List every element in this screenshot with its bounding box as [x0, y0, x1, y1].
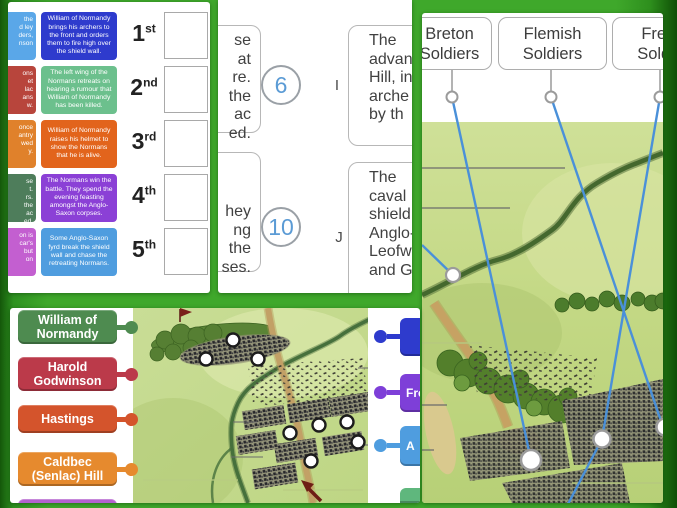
- label-cut-right-1[interactable]: [400, 318, 420, 356]
- map-terrain: [422, 122, 663, 503]
- connector-dot: [374, 330, 387, 343]
- event-card[interactable]: William of Normandy brings his archers t…: [41, 12, 117, 60]
- connector-dot: [125, 413, 138, 426]
- battle-map-illustration: [422, 13, 663, 503]
- answer-box-4[interactable]: [164, 174, 208, 221]
- ordinal-3rd: 3rd: [124, 128, 164, 160]
- panel-sequencing-worksheet: the d ley ders, nson ons et lac ans w. o…: [8, 2, 210, 293]
- answer-box-3[interactable]: [164, 120, 208, 167]
- event-card[interactable]: William of Normandy raises his helmet to…: [41, 120, 117, 168]
- label-hastings[interactable]: Hastings: [18, 405, 117, 433]
- connector-dot: [125, 463, 138, 476]
- match-number-10: 10: [261, 207, 301, 247]
- hastings-map-illustration: [133, 308, 368, 503]
- label-cut-bottom[interactable]: [18, 499, 117, 503]
- match-letter-j: J: [328, 229, 350, 246]
- event-card[interactable]: The left wing of the Normans retreats on…: [41, 66, 117, 114]
- label-stems: [452, 70, 660, 91]
- worksheet-collage: the d ley ders, nson ons et lac ans w. o…: [0, 0, 677, 508]
- ordinal-2nd: 2nd: [124, 74, 164, 106]
- connector-stem: [387, 334, 401, 339]
- ordinal-1st: 1st: [124, 20, 164, 52]
- connector-dot: [374, 386, 387, 399]
- event-card[interactable]: The Normans win the battle. They spend t…: [41, 174, 117, 222]
- answer-box-5[interactable]: [164, 228, 208, 275]
- label-cut-right-3[interactable]: A: [400, 426, 420, 466]
- panel-places-map-worksheet: William of Normandy Harold Godwinson Has…: [10, 308, 420, 503]
- connector-stem: [387, 390, 401, 395]
- event-card-cut[interactable]: the d ley ders, nson: [8, 12, 36, 60]
- label-william-of-normandy[interactable]: William of Normandy: [18, 310, 117, 344]
- panel-matching-worksheet: se at re. the ac ed. 6 I The advanc Hill…: [218, 0, 412, 293]
- connector-dot: [374, 439, 387, 452]
- match-number-6: 6: [261, 65, 301, 105]
- panel-soldier-labelling-map: Breton Soldiers Flemish Soldiers French …: [422, 13, 663, 503]
- event-card[interactable]: Some Anglo-Saxon fyrd break the shield w…: [41, 228, 117, 276]
- label-cut-right-2[interactable]: Fre: [400, 374, 420, 412]
- answer-box-2[interactable]: [164, 66, 208, 113]
- label-harold-godwinson[interactable]: Harold Godwinson: [18, 357, 117, 391]
- connector-dot: [125, 368, 138, 381]
- ordinal-4th: 4th: [124, 182, 164, 214]
- statement-card-cut[interactable]: hey ng the ses.: [218, 152, 261, 272]
- event-card-cut[interactable]: once antry wed y.: [8, 120, 36, 168]
- match-letter-i: I: [326, 77, 348, 94]
- event-card-cut[interactable]: on is car's but on: [8, 228, 36, 276]
- event-card-cut[interactable]: ons et lac ans w.: [8, 66, 36, 114]
- statement-card-cut[interactable]: The advanc Hill, in arche by th: [348, 25, 412, 146]
- ordinal-5th: 5th: [124, 236, 164, 268]
- label-caldbec-senlac-hill[interactable]: Caldbec (Senlac) Hill: [18, 452, 117, 486]
- event-card-cut[interactable]: se t. rs. the ac ed.: [8, 174, 36, 222]
- connector-stem: [387, 443, 401, 448]
- statement-card-cut[interactable]: The caval shield w Anglo-S Leofwi and Gy…: [348, 162, 412, 293]
- answer-box-1[interactable]: [164, 12, 208, 59]
- statement-card-cut[interactable]: se at re. the ac ed.: [218, 25, 261, 133]
- connector-dot: [125, 321, 138, 334]
- label-cut-right-4[interactable]: [400, 488, 420, 503]
